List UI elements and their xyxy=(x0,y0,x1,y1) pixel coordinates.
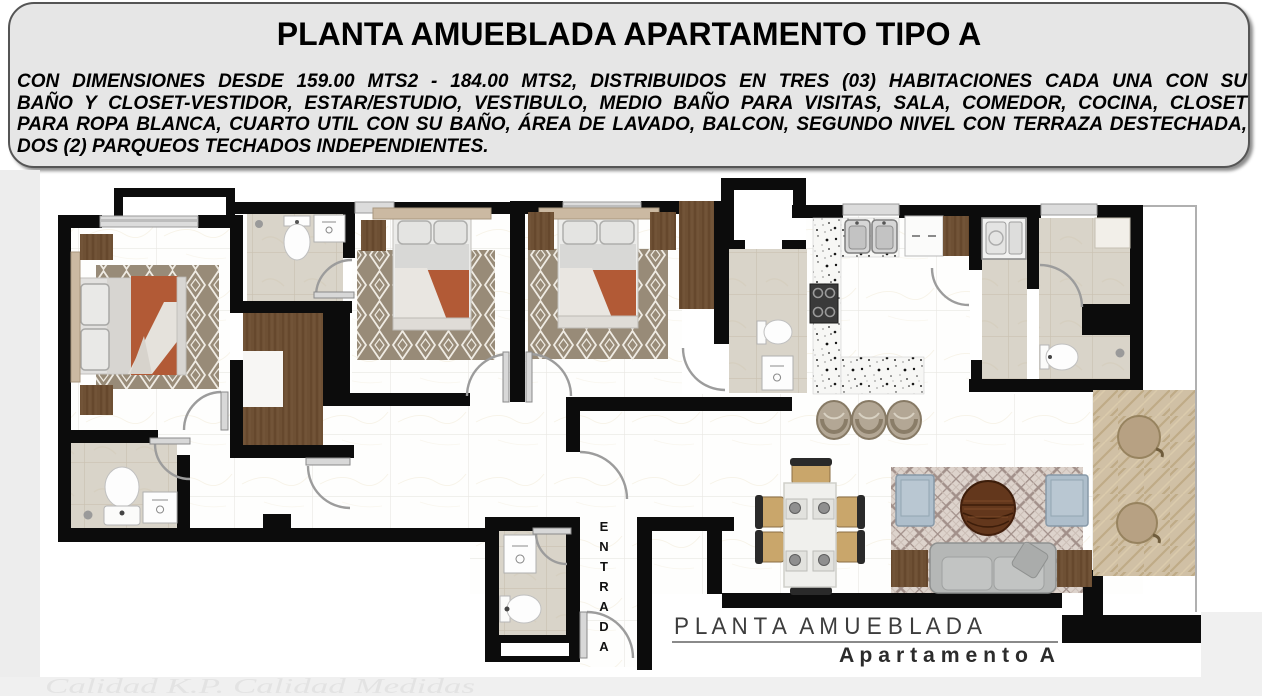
svg-text:D: D xyxy=(599,619,608,634)
svg-text:R: R xyxy=(599,579,609,594)
svg-text:E: E xyxy=(600,519,609,534)
svg-text:N: N xyxy=(599,539,608,554)
svg-text:A: A xyxy=(599,639,609,654)
svg-text:Calidad K.P. Calidad Medidas: Calidad K.P. Calidad Medidas xyxy=(45,674,475,696)
svg-text:T: T xyxy=(600,559,608,574)
svg-text:A p a r t a m e n t o A: A p a r t a m e n t o A xyxy=(839,644,1055,667)
svg-text:A: A xyxy=(599,599,609,614)
svg-text:P L A N T A A M U E B L A D A: P L A N T A A M U E B L A D A xyxy=(674,613,982,640)
